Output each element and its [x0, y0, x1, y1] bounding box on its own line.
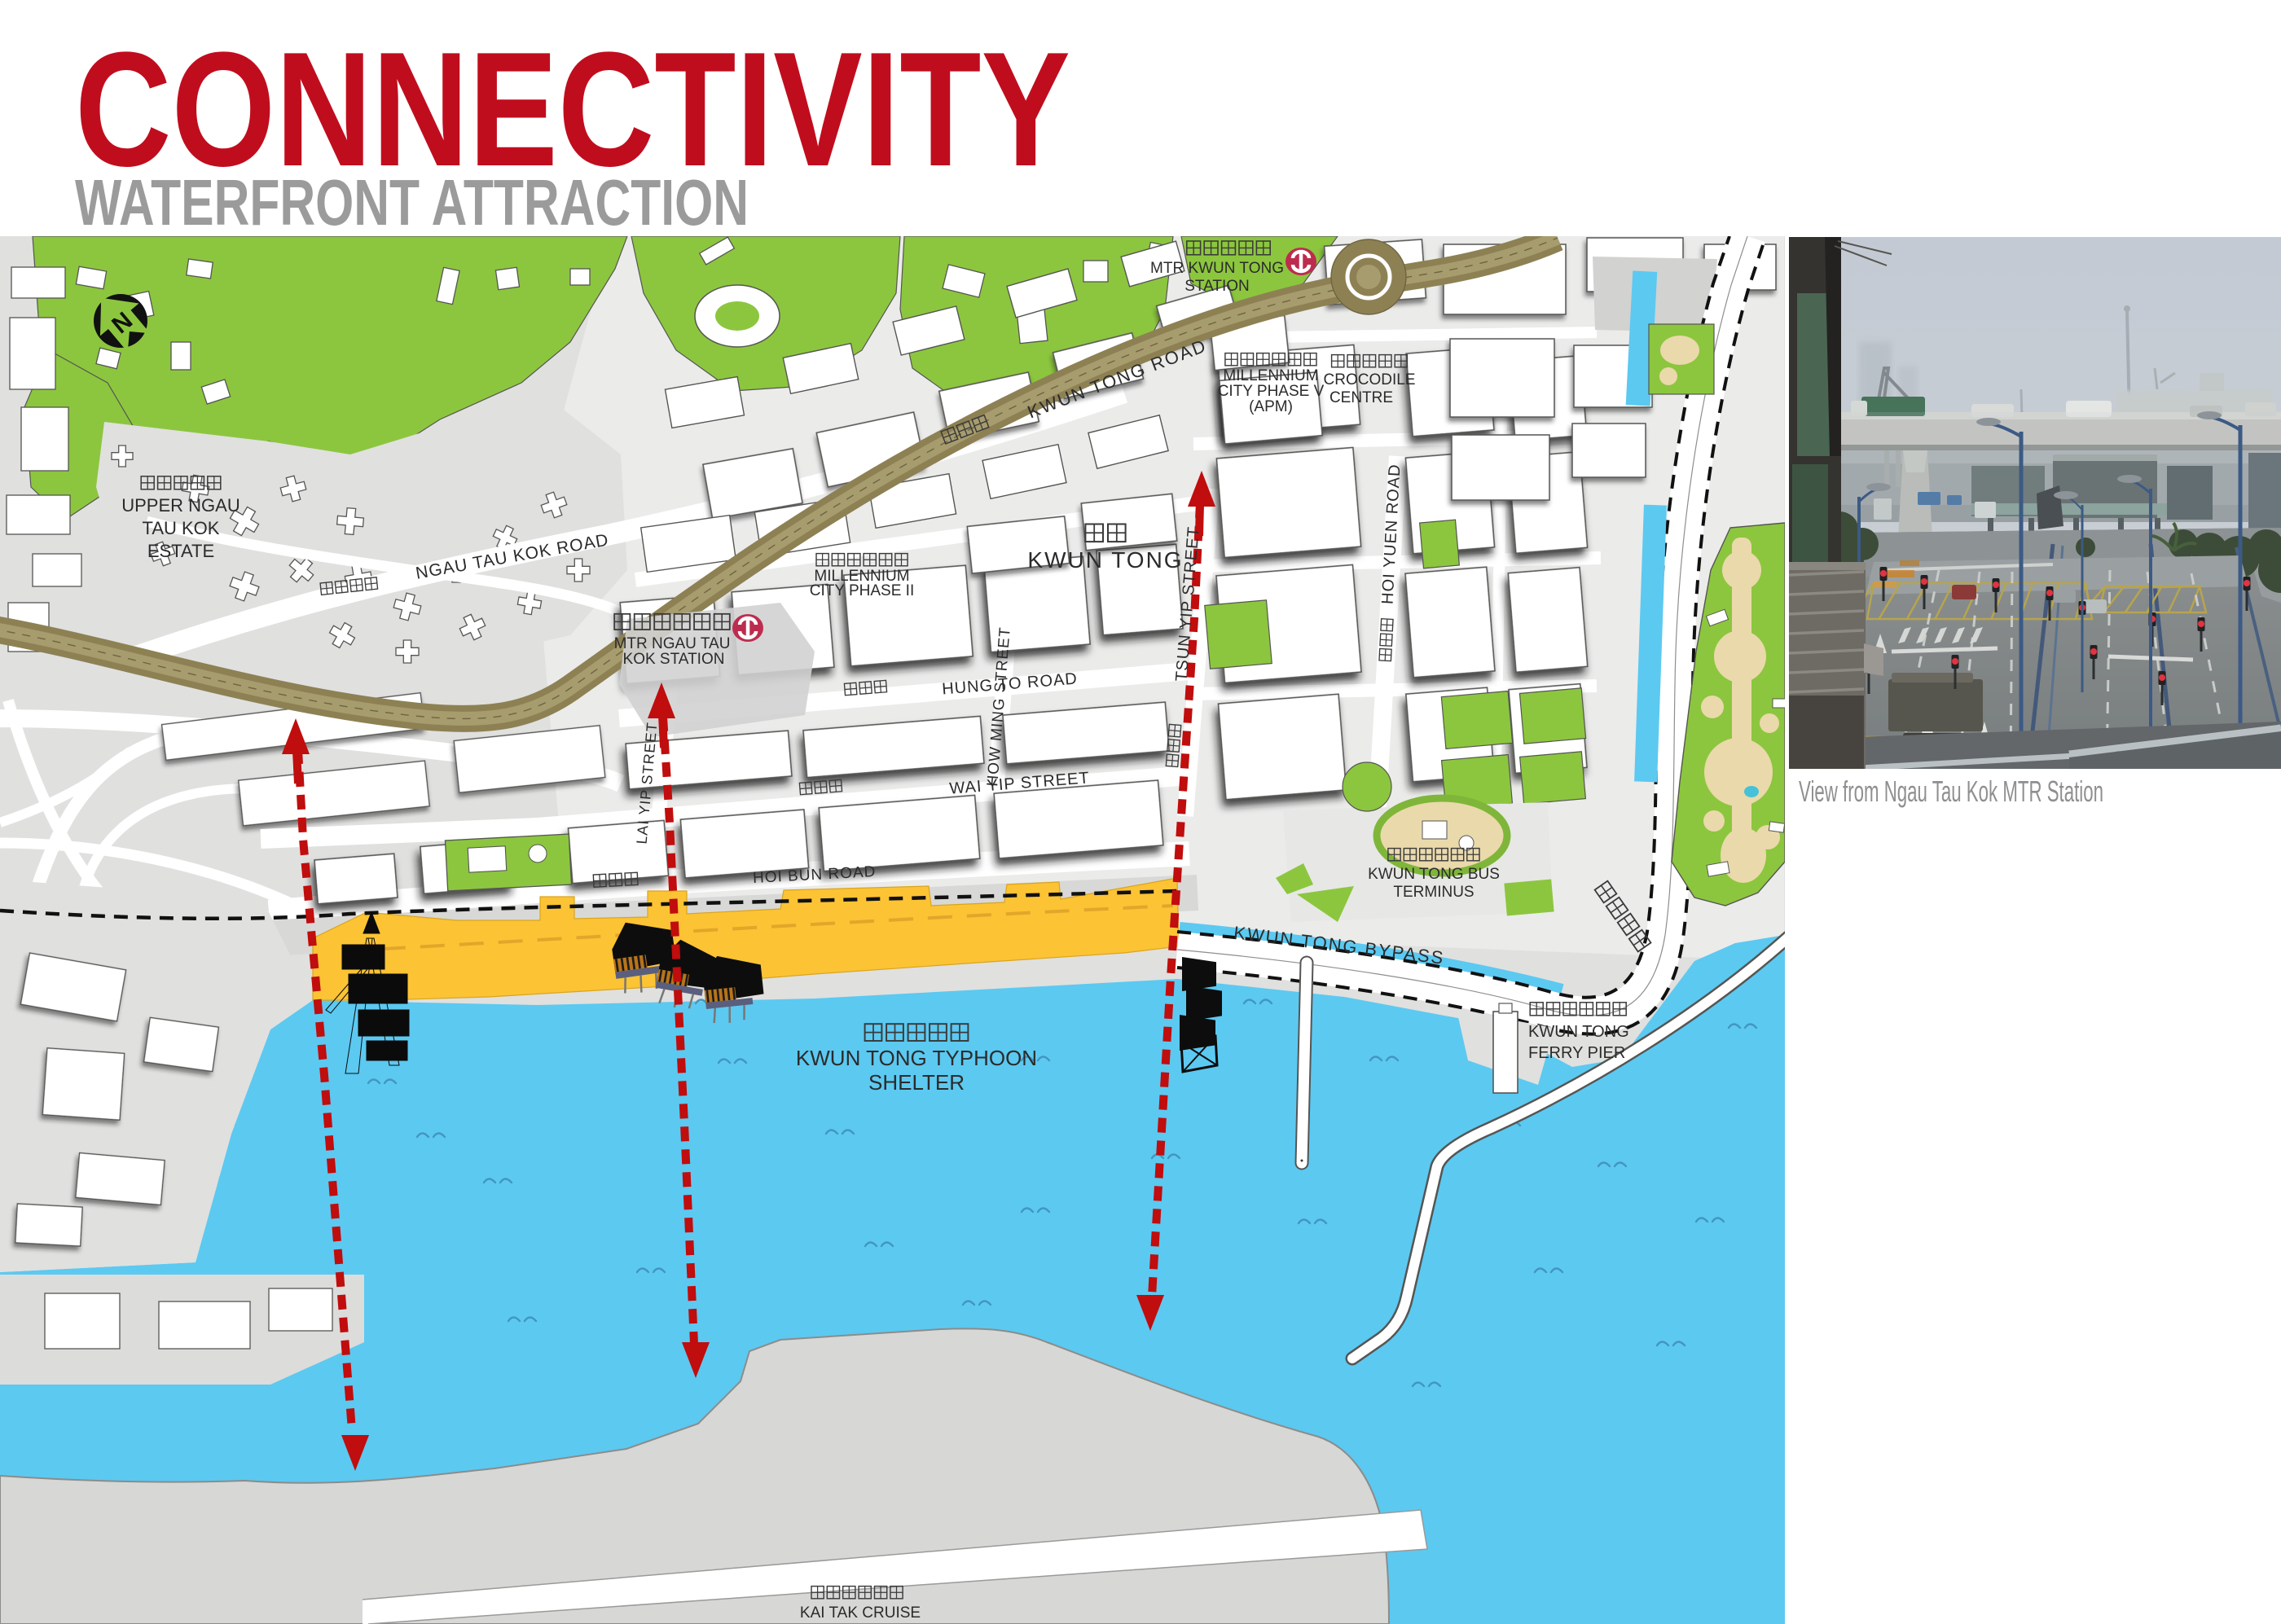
- svg-text:CROCODILE: CROCODILE: [1324, 371, 1416, 388]
- svg-text:CITY PHASE II: CITY PHASE II: [810, 582, 914, 599]
- svg-text:View from Ngau Tau Kok MTR Sta: View from Ngau Tau Kok MTR Station: [1799, 775, 2103, 808]
- svg-text:KAI TAK CRUISE: KAI TAK CRUISE: [800, 1604, 921, 1622]
- svg-text:MTR NGAU TAU: MTR NGAU TAU: [614, 635, 731, 652]
- svg-text:ESTATE: ESTATE: [147, 541, 214, 561]
- svg-text:CENTRE: CENTRE: [1329, 389, 1393, 406]
- svg-text:KOK STATION: KOK STATION: [623, 651, 725, 668]
- svg-text:KWUN TONG: KWUN TONG: [1027, 547, 1183, 573]
- svg-text:SHELTER: SHELTER: [868, 1070, 965, 1095]
- svg-text:KWUN TONG TYPHOON: KWUN TONG TYPHOON: [796, 1046, 1037, 1070]
- svg-text:STATION: STATION: [1184, 278, 1250, 295]
- svg-text:FERRY PIER: FERRY PIER: [1528, 1044, 1625, 1062]
- svg-text:CITY PHASE V: CITY PHASE V: [1218, 383, 1325, 400]
- svg-text:UPPER NGAU: UPPER NGAU: [121, 495, 240, 516]
- svg-text:MTR KWUN TONG: MTR KWUN TONG: [1150, 260, 1284, 277]
- svg-text:TERMINUS: TERMINUS: [1393, 884, 1474, 901]
- svg-text:KWUN TONG: KWUN TONG: [1528, 1023, 1629, 1041]
- svg-text:KWUN TONG BUS: KWUN TONG BUS: [1368, 866, 1500, 883]
- svg-text:(APM): (APM): [1249, 398, 1293, 415]
- svg-text:MILLENNIUM: MILLENNIUM: [1223, 367, 1318, 384]
- svg-text:TAU KOK: TAU KOK: [143, 518, 220, 538]
- svg-text:WATERFRONT ATTRACTION: WATERFRONT ATTRACTION: [75, 166, 749, 239]
